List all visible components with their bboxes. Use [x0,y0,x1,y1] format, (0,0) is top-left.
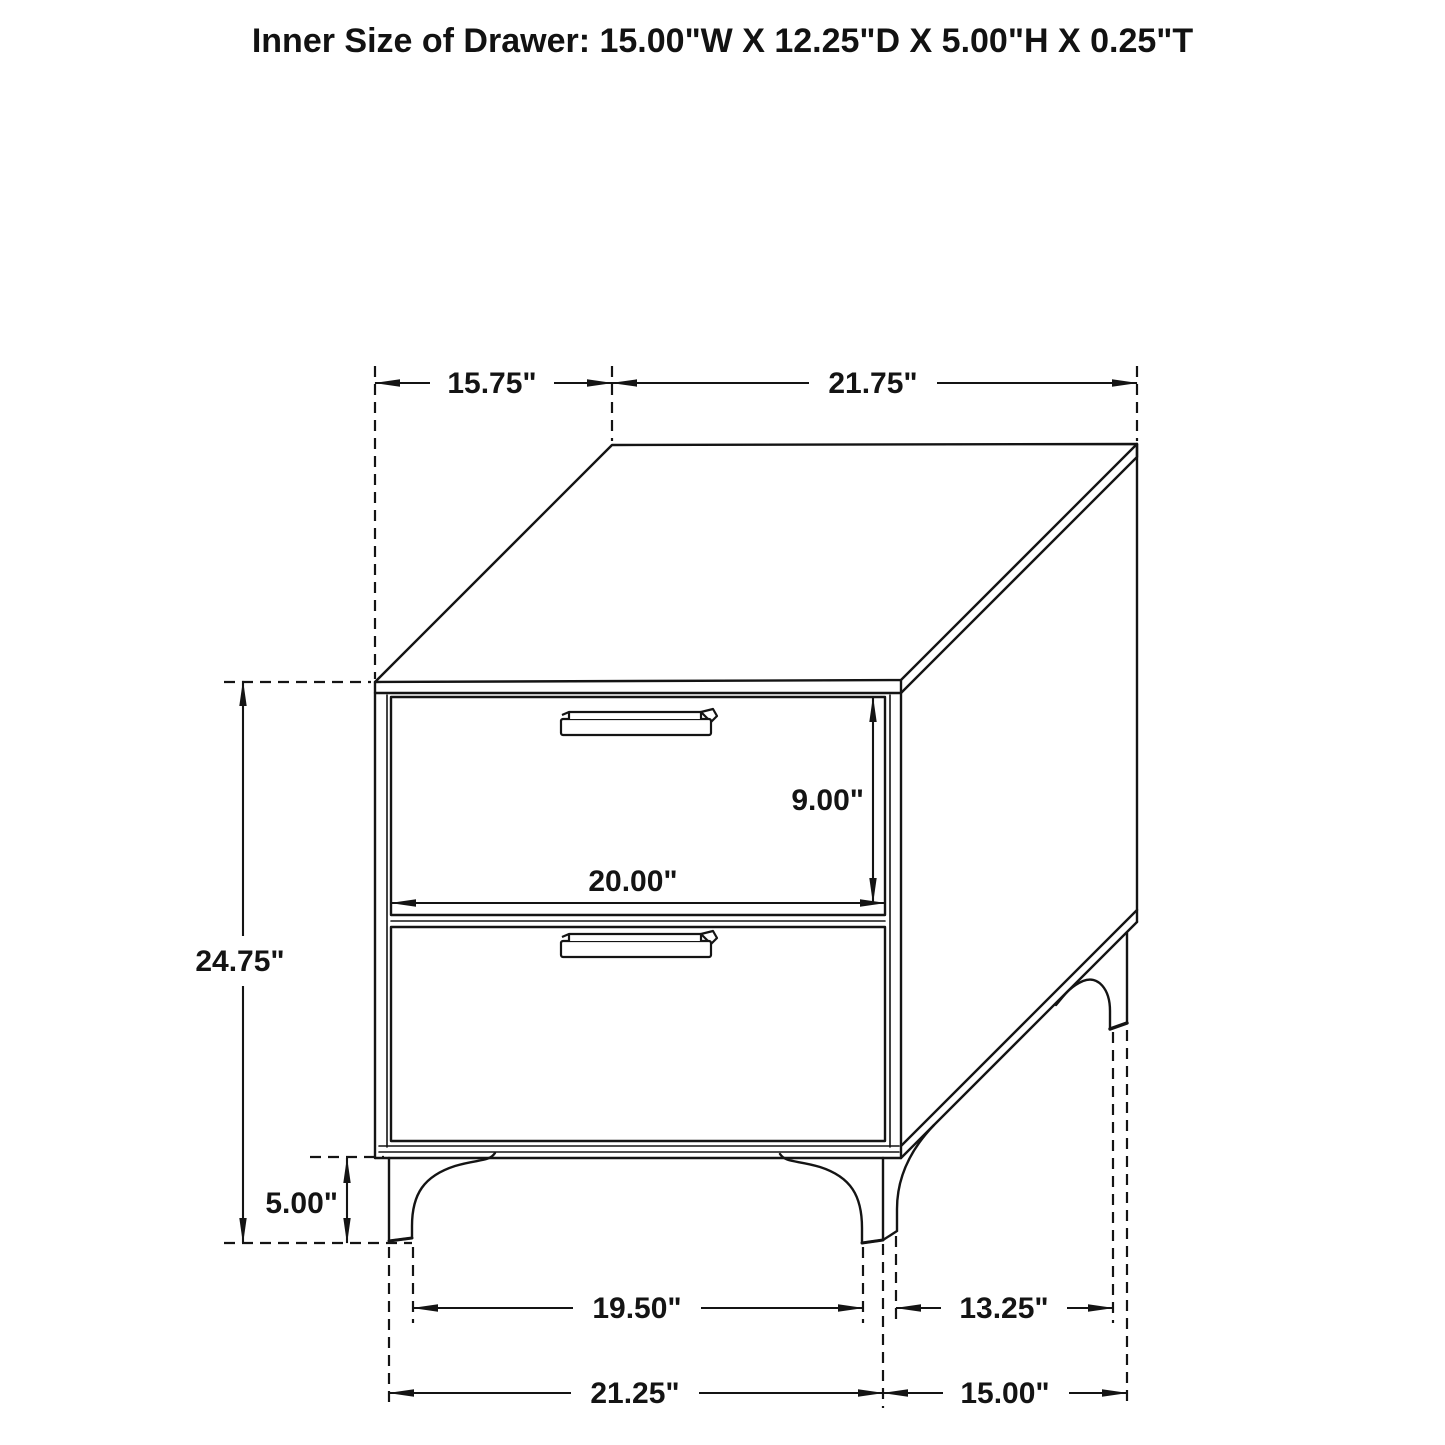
drawer-handles [561,709,717,957]
dimension-labels: 15.75" 21.75" 9.00" 20.00" 24.75" 5.00" … [195,367,1049,1410]
front-left-leg [389,1153,495,1241]
dim-label-overall-height: 24.75" [195,945,284,978]
dimension-diagram-page: Inner Size of Drawer: 15.00"W X 12.25"D … [0,0,1445,1445]
nightstand-outline [375,444,1137,1158]
rear-right-foot-base [1110,1023,1127,1029]
dim-label-legs-depth-gap: 13.25" [959,1292,1048,1325]
extension-lines [224,366,1137,1408]
dimension-lines [243,383,1137,1393]
bottom-drawer-face [391,927,885,1141]
front-right-foot-base [862,1240,883,1243]
bottom-rail-line [379,1146,899,1152]
handle-bar [561,941,711,957]
front-right-leg [780,1125,934,1243]
dim-label-drawer-width: 20.00" [588,865,677,898]
dim-label-legs-outer: 21.25" [590,1377,679,1410]
top-slab-side-edge [901,444,1137,693]
front-left-foot-base [389,1238,412,1241]
handle-bar [561,719,711,735]
nightstand-dimension-drawing: 15.75" 21.75" 9.00" 20.00" 24.75" 5.00" … [0,0,1445,1445]
nightstand-thin-lines [379,695,899,1152]
dim-label-legs-inner: 19.50" [592,1292,681,1325]
dim-label-leg-height: 5.00" [265,1187,338,1220]
dim-label-legs-depth-outer: 15.00" [960,1377,1049,1410]
dim-label-top-depth: 15.75" [447,367,536,400]
handle-top-flange [562,712,701,719]
side-panel-bottom-rail [901,910,1137,1158]
handle-top-flange [562,934,701,941]
top-face [375,444,1137,682]
dim-label-top-width: 21.75" [828,367,917,400]
top-drawer-handle [561,709,717,735]
bottom-drawer-handle [561,931,717,957]
nightstand-legs [389,933,1127,1243]
dim-label-drawer-height: 9.00" [791,784,864,817]
